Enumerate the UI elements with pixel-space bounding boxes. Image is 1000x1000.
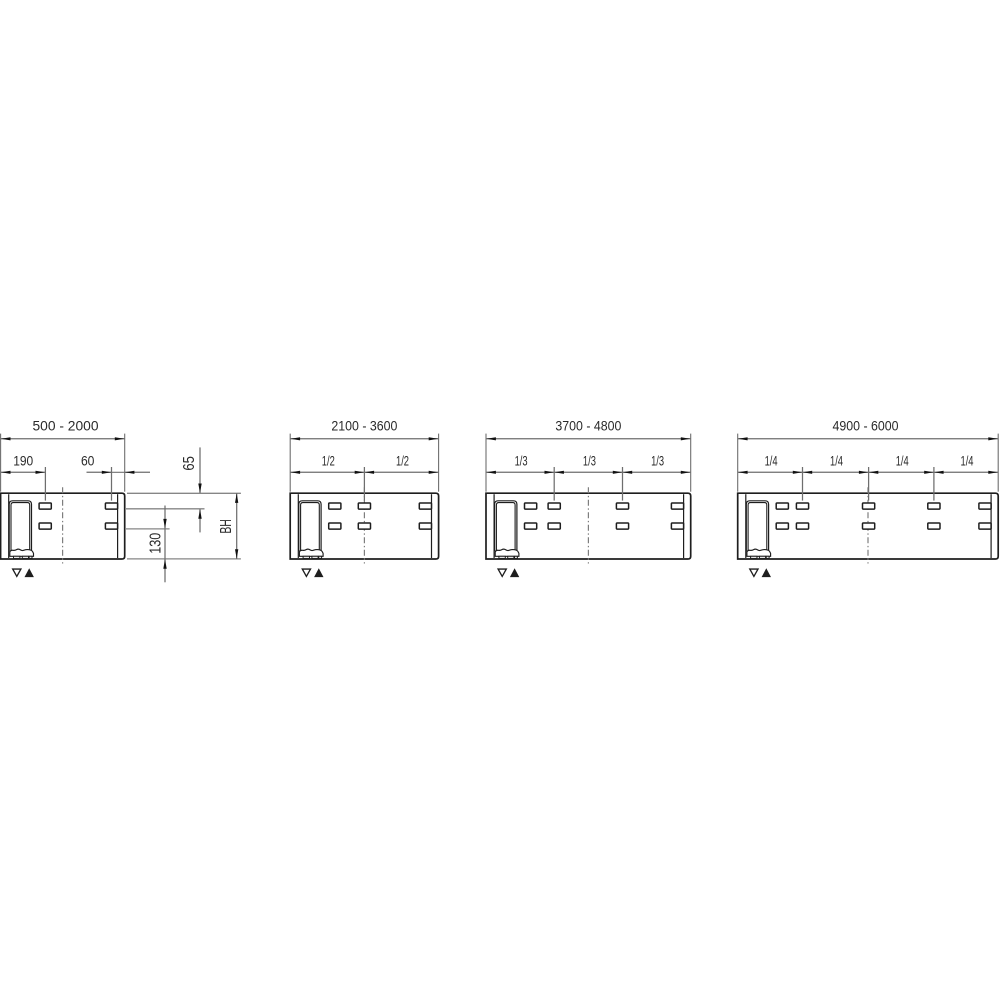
svg-text:3700 - 4800: 3700 - 4800 [555, 418, 621, 434]
svg-text:1/4: 1/4 [765, 453, 778, 469]
svg-text:4900 - 6000: 4900 - 6000 [833, 418, 899, 434]
svg-text:1/3: 1/3 [583, 453, 596, 469]
svg-text:190: 190 [13, 453, 33, 469]
svg-text:2100 - 3600: 2100 - 3600 [331, 418, 397, 434]
svg-text:1/4: 1/4 [830, 453, 843, 469]
svg-text:130: 130 [148, 533, 165, 554]
svg-text:1/3: 1/3 [515, 453, 528, 469]
svg-text:1/2: 1/2 [396, 453, 409, 469]
svg-text:500 - 2000: 500 - 2000 [33, 418, 99, 434]
svg-text:1/4: 1/4 [896, 453, 909, 469]
svg-text:65: 65 [181, 456, 198, 471]
svg-text:60: 60 [81, 453, 95, 469]
svg-text:BH: BH [218, 519, 235, 534]
svg-text:1/2: 1/2 [322, 453, 335, 469]
svg-text:1/3: 1/3 [651, 453, 664, 469]
svg-text:1/4: 1/4 [961, 453, 974, 469]
